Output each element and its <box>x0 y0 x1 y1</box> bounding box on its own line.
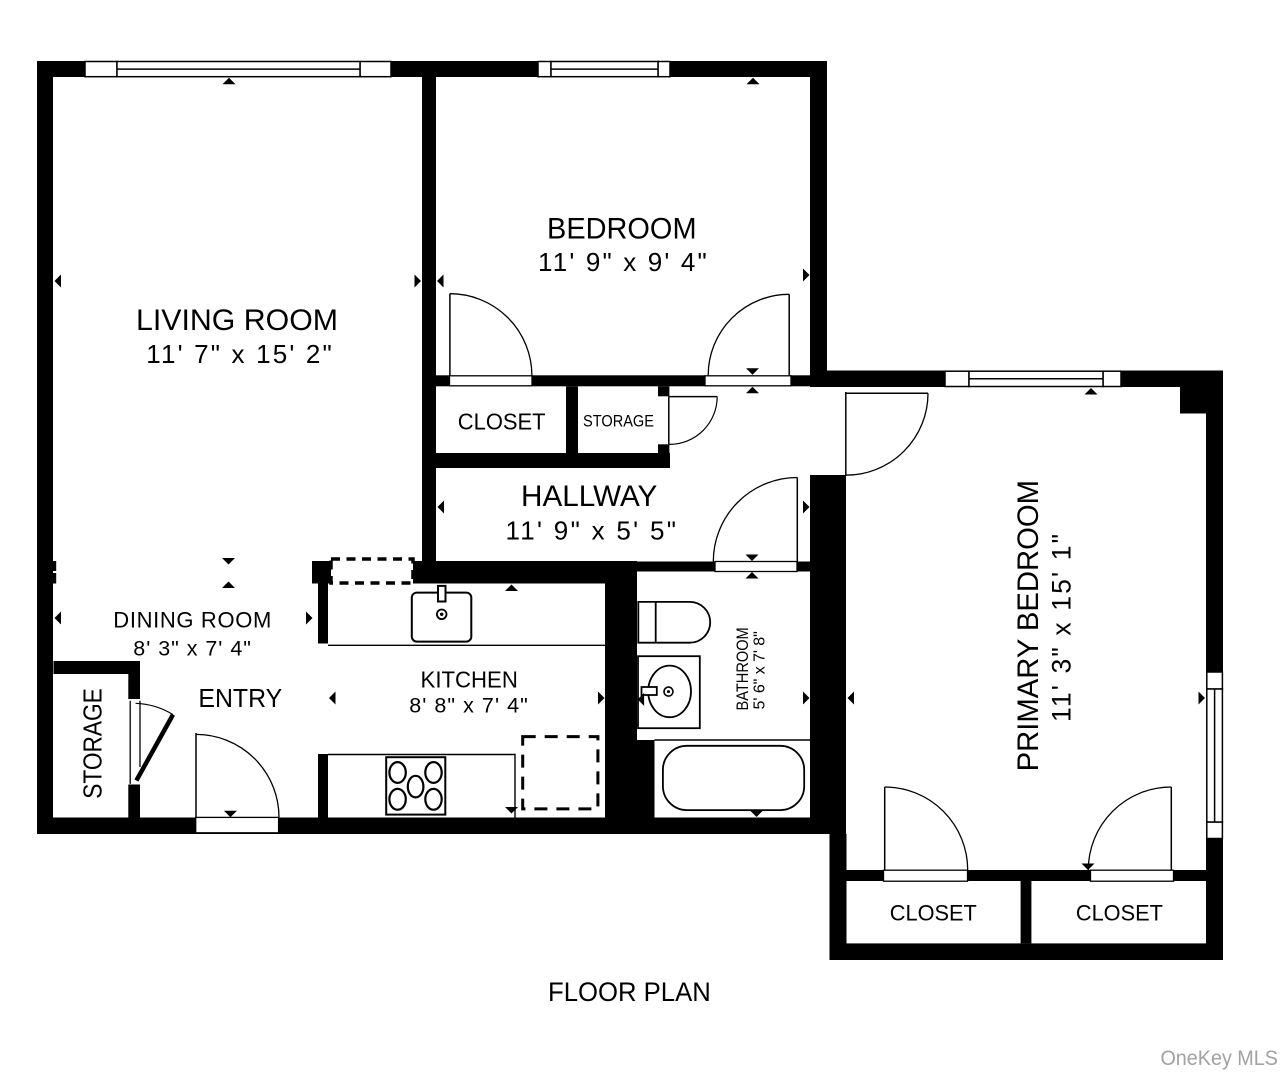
svg-text:CLOSET: CLOSET <box>458 409 546 435</box>
svg-text:5' 6" x 7' 8": 5' 6" x 7' 8" <box>752 631 769 709</box>
svg-text:BATHROOM: BATHROOM <box>733 627 752 710</box>
svg-text:OneKey MLS: OneKey MLS <box>1160 1047 1278 1070</box>
svg-text:CLOSET: CLOSET <box>1076 900 1163 925</box>
svg-text:STORAGE: STORAGE <box>79 688 107 799</box>
svg-text:8' 3" x 7' 4": 8' 3" x 7' 4" <box>133 637 251 661</box>
svg-text:11' 9" x 9' 4": 11' 9" x 9' 4" <box>538 247 707 277</box>
svg-text:KITCHEN: KITCHEN <box>421 667 518 693</box>
svg-text:LIVING ROOM: LIVING ROOM <box>136 304 338 337</box>
svg-text:ENTRY: ENTRY <box>198 683 282 713</box>
svg-text:FLOOR PLAN: FLOOR PLAN <box>548 977 711 1007</box>
svg-text:STORAGE: STORAGE <box>583 413 654 431</box>
svg-text:DINING ROOM: DINING ROOM <box>113 608 271 633</box>
svg-text:HALLWAY: HALLWAY <box>521 480 657 513</box>
svg-text:CLOSET: CLOSET <box>890 900 977 925</box>
svg-text:PRIMARY BEDROOM: PRIMARY BEDROOM <box>1012 480 1045 771</box>
svg-text:8' 8" x 7' 4": 8' 8" x 7' 4" <box>409 694 528 718</box>
svg-text:11' 9" x 5' 5": 11' 9" x 5' 5" <box>505 516 676 546</box>
svg-text:BEDROOM: BEDROOM <box>547 212 697 245</box>
